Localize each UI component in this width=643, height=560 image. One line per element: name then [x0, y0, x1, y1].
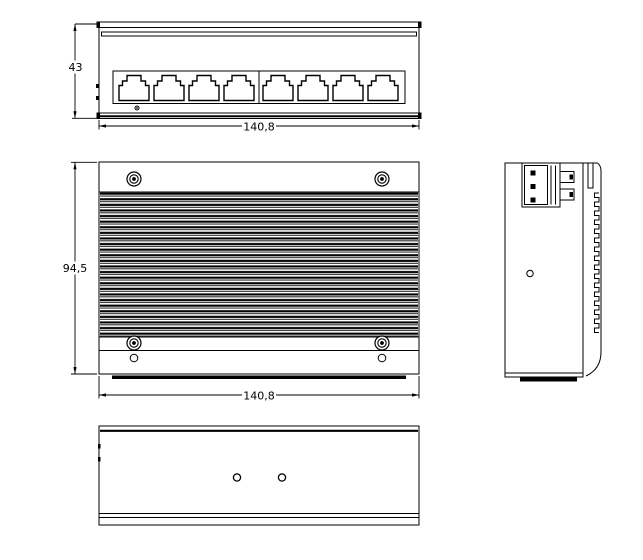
terminal-tab-2-mark	[570, 192, 574, 197]
screw-bottom-right	[375, 336, 389, 350]
top-depth-dim-label: 94,5	[63, 262, 88, 275]
rj45-port-2	[154, 76, 184, 101]
front-top-flange	[97, 22, 421, 28]
rj45-port-7	[333, 76, 363, 101]
bottom-hole-2	[278, 474, 285, 481]
screw-top-right	[375, 172, 389, 186]
rj45-port-3	[189, 76, 219, 101]
bottom-left-clip-tick-1	[98, 444, 101, 449]
terminal-block-outer	[522, 163, 560, 207]
side-hole	[527, 270, 533, 276]
terminal-pin-3	[531, 198, 536, 203]
side-bottom-shadow-bar	[520, 378, 577, 382]
front-edge-shadow-bar	[112, 376, 406, 380]
top-depth-dimension: 94,5	[60, 162, 97, 374]
front-height-dim-label: 43	[69, 61, 83, 74]
front-width-dim-label: 140,8	[243, 121, 275, 134]
front-left-clip-tick-1	[96, 84, 99, 88]
top-view	[99, 162, 419, 379]
arrowhead-right	[412, 124, 419, 127]
terminal-pin-2	[531, 184, 536, 189]
front-bottom-flange-left-cap	[97, 113, 100, 119]
led-indicator-dot	[136, 107, 138, 109]
top-width-dim-label: 140,8	[243, 390, 275, 403]
front-top-flange-right-cap	[418, 22, 421, 28]
screw-top-left	[127, 172, 141, 186]
front-top-flange-left-cap	[97, 22, 100, 28]
bottom-body	[99, 426, 419, 525]
mounting-hole-left	[130, 354, 138, 362]
front-left-clip-tick-2	[96, 96, 99, 100]
heatsink-fins	[100, 192, 418, 337]
top-width-dimension: 140,8	[99, 376, 419, 403]
technical-drawing-page: 43 140,8 94,5	[0, 0, 643, 560]
switch-dimension-drawing: 43 140,8 94,5	[0, 0, 643, 560]
bottom-left-clip-tick-2	[98, 457, 101, 462]
front-bottom-flange-right-cap	[418, 113, 421, 119]
arrowhead-up	[73, 162, 76, 169]
mounting-hole-right	[378, 354, 386, 362]
arrowhead-left	[99, 393, 106, 396]
front-view	[96, 22, 421, 119]
arrowhead-down	[73, 111, 76, 118]
rj45-port-4	[224, 76, 254, 101]
arrowhead-up	[73, 24, 76, 31]
rj45-port-1	[119, 76, 149, 101]
bottom-hole-1	[233, 474, 240, 481]
arrowhead-down	[73, 367, 76, 374]
power-terminal-block	[522, 163, 574, 207]
rj45-port-5	[263, 76, 293, 101]
arrowhead-right	[412, 393, 419, 396]
heatsink-fins-side-profile	[595, 193, 600, 333]
bottom-view	[98, 426, 419, 525]
arrowhead-left	[99, 124, 106, 127]
side-view	[505, 163, 601, 382]
screw-bottom-left	[127, 336, 141, 350]
front-top-vent-band	[102, 32, 417, 36]
terminal-pin-1	[531, 171, 536, 176]
rj45-port-8	[368, 76, 398, 101]
front-height-dimension: 43	[67, 24, 97, 118]
terminal-tab-1-mark	[570, 175, 574, 180]
side-corner-post	[588, 163, 593, 188]
rj45-port-6	[298, 76, 328, 101]
front-width-dimension: 140,8	[99, 120, 419, 134]
